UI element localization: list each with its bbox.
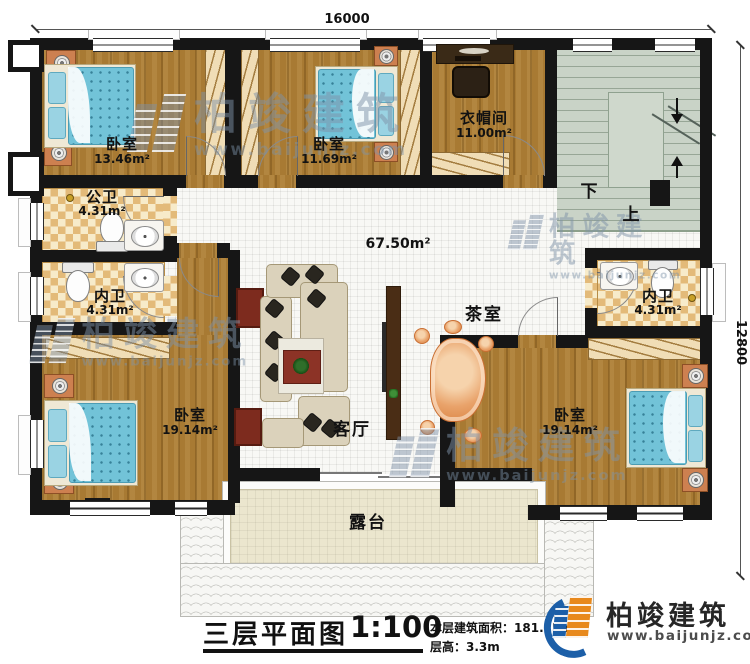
wall-ensuite-right-bottom <box>585 326 712 338</box>
tea-stone <box>464 428 482 443</box>
tv-screen-line <box>382 322 386 392</box>
door-opening-bedroom-tm <box>258 175 296 188</box>
wall-living-bottom-l <box>228 468 320 481</box>
room-label-bedroom-bl: 卧室 <box>174 407 206 424</box>
wall-ensuite-left-bottom <box>30 322 177 335</box>
wardrobe-bedroom-bl <box>45 337 170 359</box>
sink-ensuite-right <box>600 262 638 290</box>
room-label-tea: 茶室 <box>465 306 503 326</box>
tea-stone <box>414 328 430 344</box>
stair-arrow-down-icon <box>671 114 683 130</box>
room-label-bedroom-br: 卧室 <box>554 407 586 424</box>
hall-area-label: 67.50m² <box>365 236 430 252</box>
bed-bedroom-br <box>626 388 706 468</box>
door-opening-cloakroom <box>503 175 543 188</box>
window-right-bath <box>700 268 714 315</box>
wall-bottom-right <box>528 505 712 520</box>
sink-ensuite-left <box>124 263 164 292</box>
floor-height-label: 层高： <box>430 640 466 654</box>
bay-box-left <box>8 152 44 196</box>
sliding-door-line-2 <box>378 476 440 478</box>
floor-height-value: 3.3m <box>466 640 500 654</box>
wall-cloakroom-stairs <box>545 40 557 188</box>
wall-bedrooms-divider <box>225 44 241 182</box>
room-area-cloakroom: 11.00m² <box>456 127 512 141</box>
room-label-bedroom-tl: 卧室 <box>106 136 138 153</box>
bed-bedroom-bl <box>44 400 138 486</box>
bed-bedroom-tm <box>315 66 398 142</box>
wardrobe-bedroom-tm-right <box>400 46 422 178</box>
wall-ensuite-right-top <box>585 248 712 260</box>
stair-pier <box>650 180 670 206</box>
room-area-ensuite-left: 4.31m² <box>86 304 133 318</box>
closet-cloakroom <box>430 152 510 177</box>
toilet-ensuite-left <box>66 270 90 302</box>
sink-public-bath <box>124 220 164 251</box>
sill-right-1 <box>712 263 726 322</box>
room-label-living: 客厅 <box>333 421 371 441</box>
dimension-width: 16000 <box>324 12 369 27</box>
nightstand <box>682 364 708 388</box>
room-area-public-bath: 4.31m² <box>78 205 125 219</box>
roof-tiles-bottom <box>180 563 594 617</box>
room-area-ensuite-right: 4.31m² <box>634 304 681 318</box>
door-stop-knob <box>66 194 74 202</box>
stair-label-down: 下 <box>581 183 600 203</box>
room-area-bedroom-bl: 19.14m² <box>162 424 218 438</box>
floor-height-line: 层高：3.3m <box>430 638 500 655</box>
door-opening-ensuite-left <box>163 276 177 316</box>
tv-partition <box>386 286 401 440</box>
room-area-bedroom-tm: 11.69m² <box>301 153 357 167</box>
coffee-table <box>278 338 324 394</box>
nightstand <box>44 374 74 398</box>
room-area-bedroom-tl: 13.46m² <box>94 153 150 167</box>
brand-logo <box>544 588 602 654</box>
door-opening-public-bath <box>163 196 177 236</box>
brand-website: www.baijunjz.com <box>607 628 750 644</box>
nightstand <box>374 46 398 66</box>
window-bottom-right-1 <box>560 506 607 521</box>
window-bottom-left-1 <box>70 501 150 516</box>
floor-area-label: 本层建筑面积： <box>430 621 514 635</box>
nightstand <box>374 142 398 162</box>
tea-stone <box>420 420 435 435</box>
wardrobe-bedroom-tm-left <box>241 46 259 178</box>
door-stop-knob <box>688 294 696 302</box>
dimension-line-right <box>740 45 741 577</box>
dimension-line-top <box>35 29 712 30</box>
window-top-4 <box>573 38 612 52</box>
title-underline <box>203 649 423 653</box>
sofa-bottom <box>262 418 304 448</box>
stair-landing <box>608 92 664 188</box>
rug-red-bottom <box>234 408 262 446</box>
cloakroom-chair <box>452 66 490 98</box>
window-bottom-right-2 <box>637 506 683 521</box>
door-opening-ensuite-right <box>585 268 597 308</box>
door-opening-vestibule <box>179 243 217 258</box>
logo-building-orange <box>566 596 592 638</box>
door-opening-bedroom-br <box>518 335 556 348</box>
cloakroom-desk <box>436 44 514 64</box>
window-left-bath2 <box>30 277 44 315</box>
window-left-bath1 <box>30 203 44 240</box>
tea-stone <box>444 320 462 334</box>
floor-plan: 柏竣建筑 www.baijunjz.com 柏竣建筑 www.baijunjz.… <box>0 0 750 664</box>
wall-cloakroom-left <box>420 44 432 182</box>
window-top-5 <box>655 38 695 52</box>
plan-scale: 1:100 <box>350 610 442 644</box>
room-label-terrace: 露台 <box>349 514 387 534</box>
bay-box-top-left <box>8 40 44 72</box>
nightstand <box>682 468 708 492</box>
window-bottom-left-2 <box>175 501 207 516</box>
wardrobe-bedroom-br <box>588 338 704 360</box>
stair-hall-edge <box>557 230 700 232</box>
plan-title: 三层平面图 <box>203 614 348 651</box>
room-label-cloakroom: 衣帽间 <box>460 110 508 127</box>
dimension-depth: 12800 <box>733 320 748 365</box>
window-left-bedroom <box>30 420 44 468</box>
window-top-2 <box>270 38 360 52</box>
room-area-bedroom-br: 19.14m² <box>542 424 598 438</box>
sliding-door-line-1 <box>320 472 382 474</box>
stair-arrow-up-icon <box>671 150 683 166</box>
room-label-bedroom-tm: 卧室 <box>313 136 345 153</box>
window-top-1 <box>93 38 173 52</box>
stair-label-up: 上 <box>623 206 642 226</box>
tea-stone <box>478 336 494 352</box>
door-opening-bedroom-tl <box>186 175 224 188</box>
